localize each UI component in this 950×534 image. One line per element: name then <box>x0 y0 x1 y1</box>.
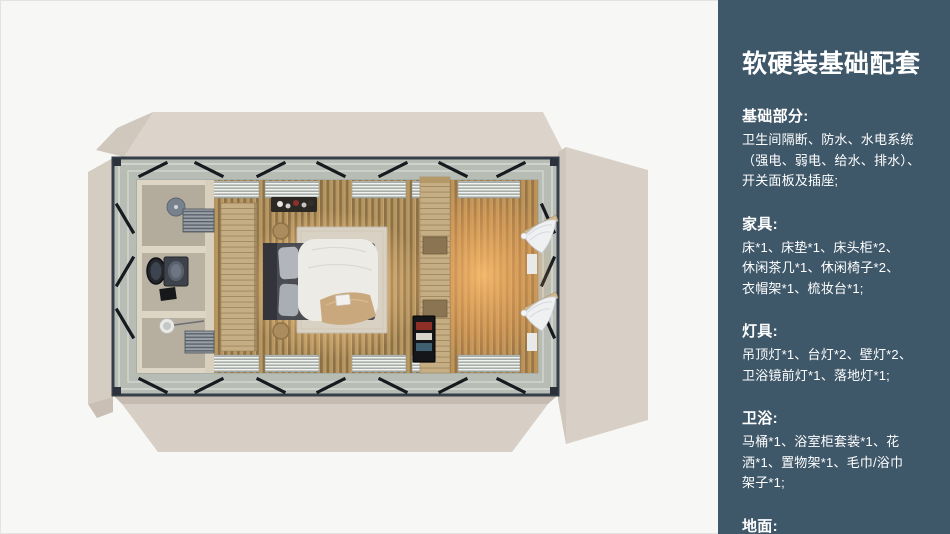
vanity-stool <box>159 287 177 301</box>
spec-section-furniture: 家具: 床*1、床垫*1、床头柜*2、 休闲茶几*1、休闲椅子*2、 衣帽架*1… <box>742 213 932 300</box>
spec-section-basics: 基础部分: 卫生间隔断、防水、水电系统 （强电、弱电、给水、排水）、 开关面板及… <box>742 105 932 192</box>
panel-title: 软硬装基础配套 <box>742 44 932 80</box>
bed-tray <box>336 294 351 305</box>
section-body-furniture: 床*1、床垫*1、床头柜*2、 休闲茶几*1、休闲椅子*2、 衣帽架*1、梳妆台… <box>742 238 932 300</box>
jute-pouf <box>273 323 289 339</box>
section-body-basics: 卫生间隔断、防水、水电系统 （强电、弱电、给水、排水）、 开关面板及插座; <box>742 130 932 192</box>
section-heading-lighting: 灯具: <box>742 320 932 341</box>
left-wall-flap <box>88 158 113 404</box>
bottom-wall-flap <box>122 404 548 452</box>
spec-section-flooring: 地面: 强化木地板、卫生间防滑防潮 石塑板; <box>742 515 932 534</box>
pillow <box>278 283 300 316</box>
room-top-view-svg <box>0 0 718 534</box>
spec-section-bathroom: 卫浴: 马桶*1、浴室柜套装*1、花 洒*1、置物架*1、毛巾/浴巾 架子*1; <box>742 407 932 494</box>
right-wall-flap <box>566 147 648 444</box>
pillow <box>278 246 300 279</box>
jute-pouf <box>273 223 289 239</box>
coat-rack <box>271 197 317 212</box>
spec-panel: 软硬装基础配套 基础部分: 卫生间隔断、防水、水电系统 （强电、弱电、给水、排水… <box>718 0 950 534</box>
partition-shelf <box>423 300 447 317</box>
slide-root: 软硬装基础配套 基础部分: 卫生间隔断、防水、水电系统 （强电、弱电、给水、排水… <box>0 0 950 534</box>
section-heading-furniture: 家具: <box>742 213 932 234</box>
towel-radiator-bottom <box>185 331 214 353</box>
partition-shelf <box>423 237 447 254</box>
spec-section-lighting: 灯具: 吊顶灯*1、台灯*2、壁灯*2、 卫浴镜前灯*1、落地灯*1; <box>742 320 932 386</box>
section-body-lighting: 吊顶灯*1、台灯*2、壁灯*2、 卫浴镜前灯*1、落地灯*1; <box>742 345 932 386</box>
section-heading-bathroom: 卫浴: <box>742 407 932 428</box>
roof-flap <box>124 112 566 157</box>
section-heading-flooring: 地面: <box>742 515 932 534</box>
bathroom <box>137 180 214 373</box>
floorplan-render <box>0 0 718 534</box>
headboard <box>263 243 277 320</box>
section-body-bathroom: 马桶*1、浴室柜套装*1、花 洒*1、置物架*1、毛巾/浴巾 架子*1; <box>742 432 932 494</box>
wood-partition <box>221 203 257 351</box>
towel-radiator-top <box>183 209 214 232</box>
section-heading-basics: 基础部分: <box>742 105 932 126</box>
